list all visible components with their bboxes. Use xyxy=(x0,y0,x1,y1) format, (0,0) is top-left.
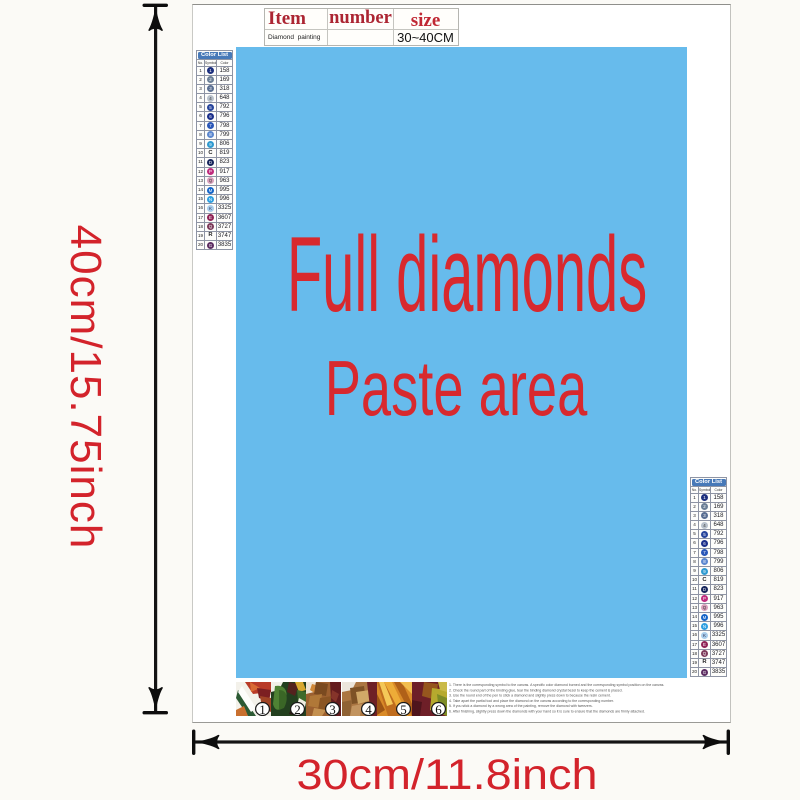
svg-text:6: 6 xyxy=(435,702,442,716)
svg-text:1: 1 xyxy=(259,702,266,716)
svg-text:4: 4 xyxy=(365,702,372,716)
svg-text:3: 3 xyxy=(330,702,337,716)
svg-text:2: 2 xyxy=(294,702,301,716)
svg-text:5: 5 xyxy=(400,702,407,716)
